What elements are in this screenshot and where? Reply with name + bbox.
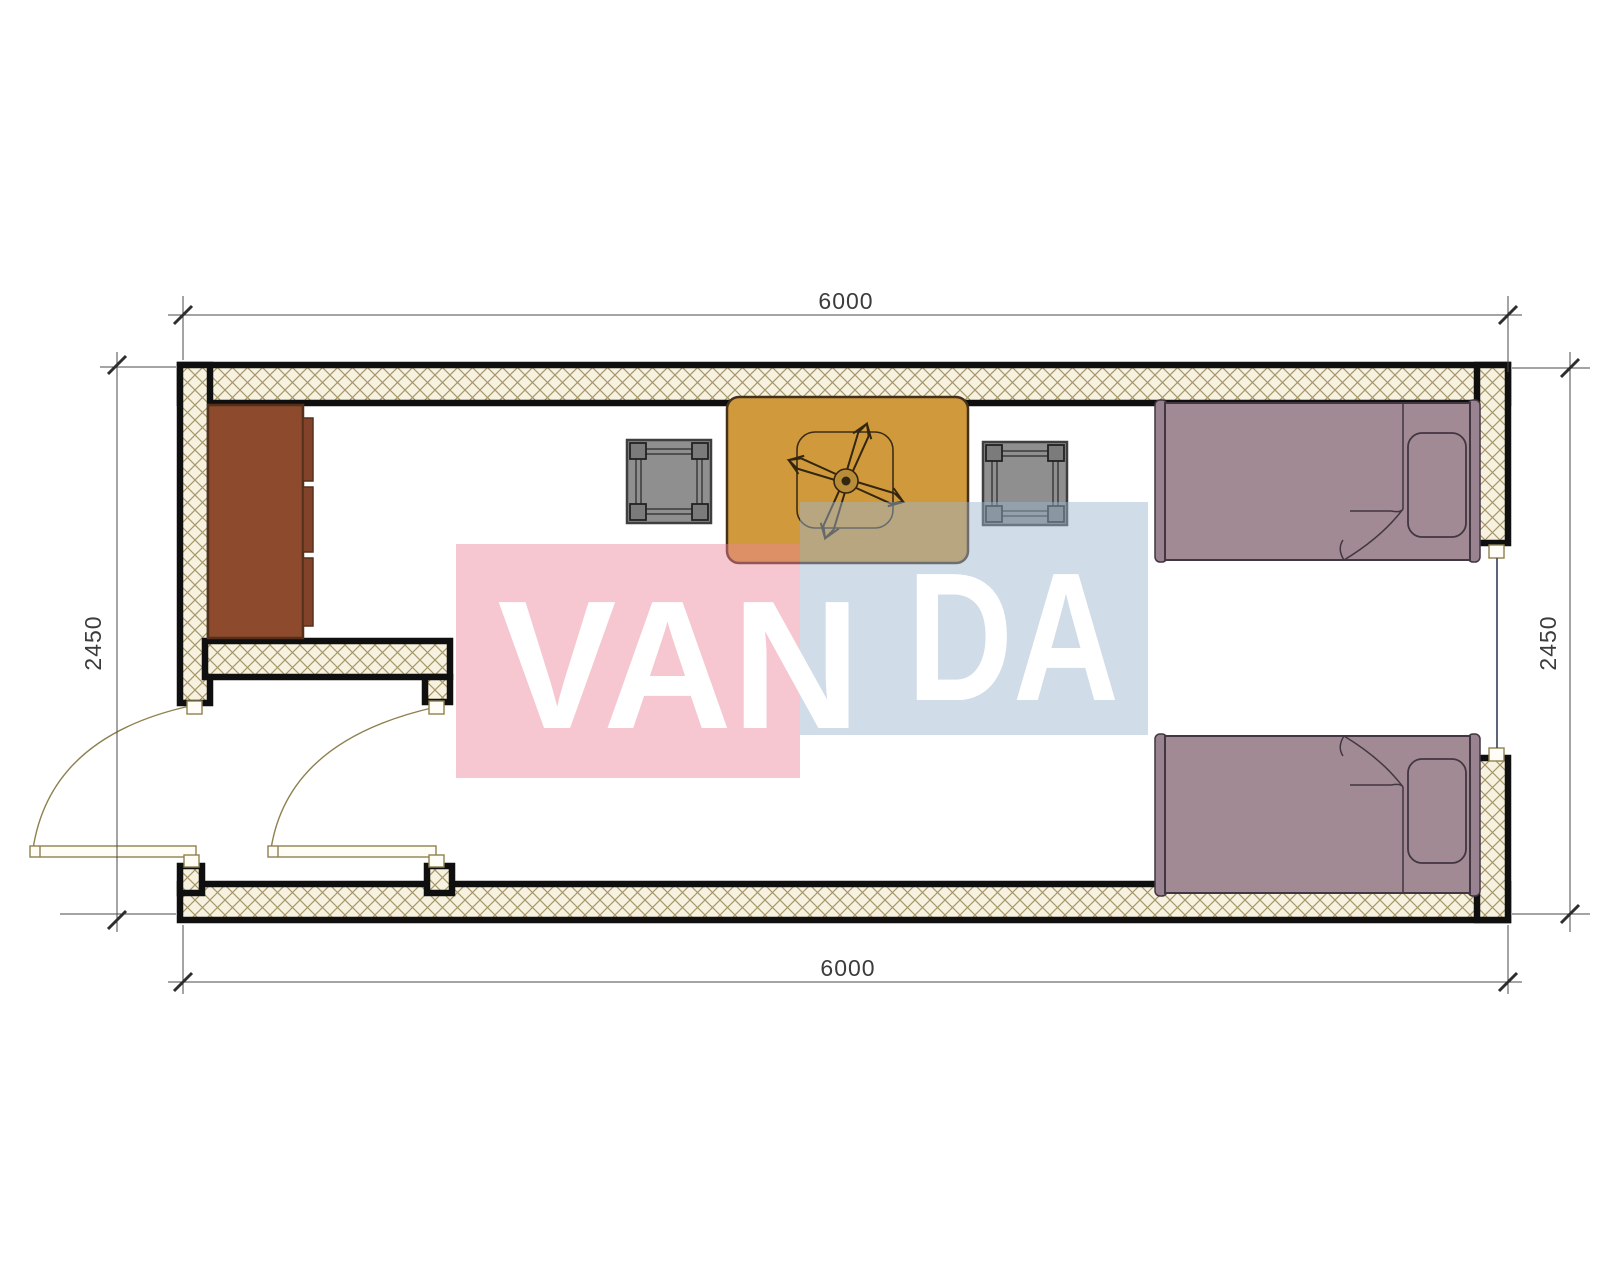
watermark-text-left: VAN (498, 562, 861, 767)
cabinet-door-1 (303, 418, 313, 481)
partition-jamb (425, 677, 450, 702)
dimension-left: 2450 (60, 352, 176, 932)
entry-door-left (30, 706, 196, 857)
window-right-wall (1489, 545, 1504, 761)
stool-left (627, 440, 711, 523)
door2-stub (427, 866, 452, 893)
window-jamb-top (1489, 545, 1504, 558)
wall-right-lower (1477, 758, 1508, 920)
dimension-top-value: 6000 (818, 288, 873, 314)
window-jamb-bottom (1489, 748, 1504, 761)
interior-door-vestibule (268, 707, 436, 857)
dimension-bottom-value: 6000 (820, 955, 875, 981)
wall-left-door-stub (180, 866, 202, 893)
floor-plan-canvas: VAN DA 6000 6000 2450 2450 (0, 0, 1600, 1280)
dimension-right: 2450 (1512, 352, 1590, 932)
dimension-bottom: 6000 (168, 925, 1522, 994)
door-swing-arc (33, 706, 190, 849)
dimension-left-value: 2450 (80, 615, 106, 670)
single-bed-top (1155, 400, 1480, 562)
wardrobe-cabinet (208, 405, 313, 638)
door-leaf (30, 846, 196, 857)
door-leaf (268, 846, 436, 857)
cabinet-body (208, 405, 303, 638)
dimension-right-value: 2450 (1535, 615, 1561, 670)
cabinet-door-3 (303, 558, 313, 626)
container-house-floor-plan: VAN DA 6000 6000 2450 2450 (0, 0, 1600, 1280)
wall-right-upper (1477, 365, 1508, 543)
partition-wall (205, 641, 450, 677)
single-bed-bottom (1155, 734, 1480, 896)
watermark-text-right: DA (907, 534, 1119, 739)
door-hinge-markers (184, 701, 444, 867)
dimension-top: 6000 (168, 288, 1522, 372)
door-swing-arc (271, 707, 436, 849)
cabinet-door-2 (303, 487, 313, 552)
watermark: VAN DA (456, 502, 1148, 778)
